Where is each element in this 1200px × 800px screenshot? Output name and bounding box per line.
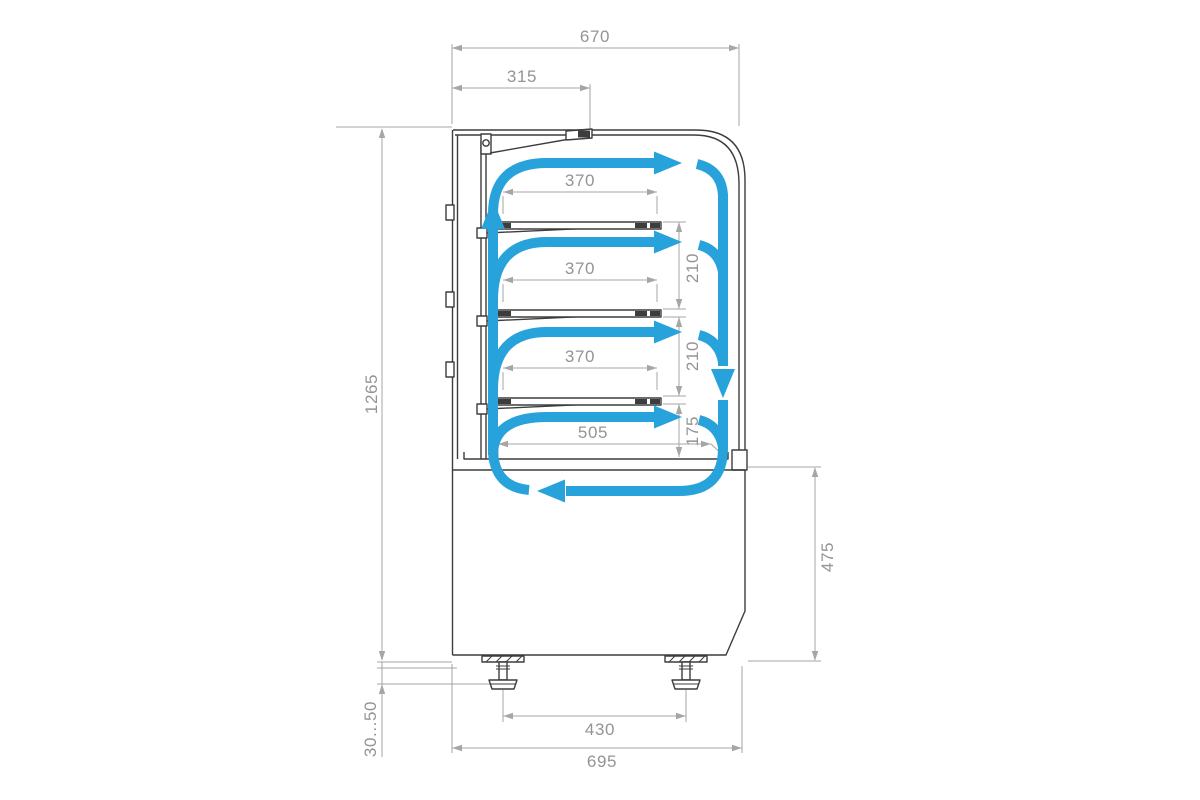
airflow-branch4 xyxy=(493,417,654,455)
shelf3-mount xyxy=(477,404,487,414)
wall-hinge-2 xyxy=(446,292,454,307)
dim-top-width-lines xyxy=(452,44,739,126)
dim-label-overall-height: 1265 xyxy=(362,374,381,414)
airflow-top-join xyxy=(697,164,723,196)
dim-label-gap2: 210 xyxy=(683,341,702,371)
airflow-arrow-right-2 xyxy=(654,231,682,254)
display-case-section-drawing: 670 315 370 370 370 210 210 175 505 1265… xyxy=(0,0,1200,800)
dim-label-gap3: 175 xyxy=(683,416,702,446)
airflow-arrow-up xyxy=(481,200,505,229)
dim-label-gap1: 210 xyxy=(683,253,702,283)
dim-base-width-lines xyxy=(452,664,742,753)
dim-label-foot-adjust: 30...50 xyxy=(361,701,380,757)
lid-latch-block xyxy=(578,131,590,138)
dim-base-height-lines xyxy=(748,467,821,661)
dim-label-base-width: 695 xyxy=(587,752,617,771)
dim-label-shelf3-width: 370 xyxy=(565,347,595,366)
base-body-outline xyxy=(453,470,746,655)
foot-left-stem xyxy=(499,662,507,680)
airflow-return-tail xyxy=(493,452,529,490)
airflow-arrow-right-1 xyxy=(654,152,682,175)
lid-hinge-pin xyxy=(483,140,489,146)
dim-shelf3-width-lines xyxy=(503,368,657,390)
dim-label-foot-spacing: 430 xyxy=(585,720,615,739)
dim-label-shelf2-width: 370 xyxy=(565,259,595,278)
dim-shelf1-width-lines xyxy=(503,192,657,214)
technical-drawing-page: 670 315 370 370 370 210 210 175 505 1265… xyxy=(0,0,1200,800)
dim-lid-width-lines xyxy=(452,84,590,132)
glass-foot-block xyxy=(732,450,747,470)
dim-label-base-height: 475 xyxy=(818,542,837,572)
dim-label-lid-width: 315 xyxy=(507,67,537,86)
dim-foot-spacing-lines xyxy=(503,690,686,722)
dim-label-deck-width: 505 xyxy=(578,423,608,442)
dim-overall-height-lines xyxy=(336,127,452,662)
airflow-arrow-left xyxy=(537,480,565,503)
dim-foot-adjust-lines xyxy=(377,662,492,757)
dim-label-top-width: 670 xyxy=(580,27,610,46)
wall-hinge-3 xyxy=(446,362,454,377)
deck-plate xyxy=(464,452,728,459)
airflow-arrow-down xyxy=(711,369,735,398)
shelf2-mount xyxy=(477,316,487,326)
shelf1-mount xyxy=(477,228,487,238)
wall-hinge-1 xyxy=(446,205,454,220)
dim-label-shelf1-width: 370 xyxy=(565,171,595,190)
foot-right-stem xyxy=(682,662,690,680)
dim-shelf2-width-lines xyxy=(503,280,657,302)
